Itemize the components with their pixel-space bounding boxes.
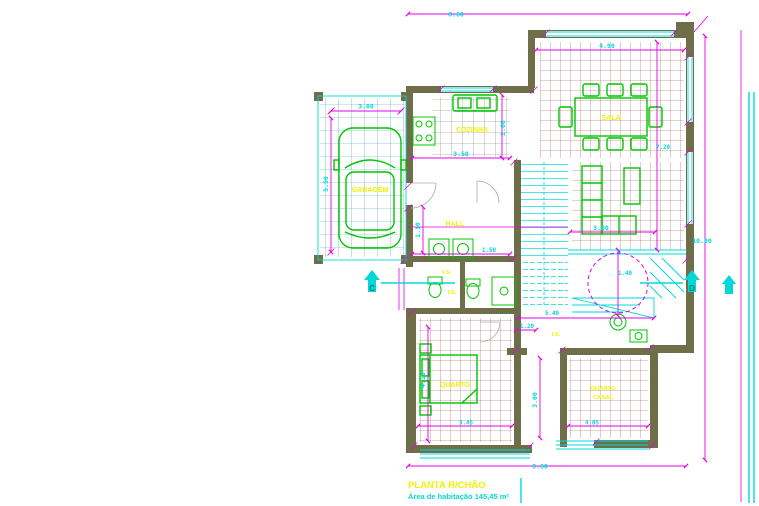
dim-text: 10.00 — [692, 237, 712, 245]
dim-text: 1.50 — [482, 248, 496, 254]
dining-label: SALA — [601, 115, 620, 122]
window-kitchen-top — [441, 87, 493, 92]
drawing-subtitle: Área de habitação 145,45 m² — [408, 492, 509, 501]
door-swing — [411, 183, 436, 208]
bath-label: I.S. — [552, 332, 561, 338]
toilet — [466, 279, 480, 299]
floor-plan-canvas: GARAGEM COZINHA SALA — [0, 0, 759, 506]
garage-post — [314, 255, 323, 264]
dim-text: 5.40 — [545, 311, 559, 317]
dim-text: 3.00 — [531, 392, 539, 408]
title-block: PLANTA R/CHÃO Área de habitação 145,45 m… — [408, 480, 509, 501]
ramp — [572, 298, 654, 318]
bedroom-label: QUARTO — [440, 382, 471, 389]
dim-leader — [694, 16, 708, 32]
dim-text: 1.40 — [618, 271, 632, 277]
section-arrow-icon — [722, 275, 736, 294]
shower — [492, 277, 516, 305]
garage-post — [401, 92, 410, 101]
step-edge — [568, 250, 686, 254]
bedroom2-label: CASAL — [593, 395, 613, 401]
dim-text: 4.05 — [585, 421, 599, 427]
dim-text: 1.10 — [414, 222, 422, 238]
section-letter: C — [369, 284, 375, 293]
window-right-lower — [687, 152, 693, 224]
dim-text: 5.50 — [322, 176, 330, 192]
garage-label: GARAGEM — [352, 187, 389, 194]
dim-text: 1.20 — [520, 324, 534, 330]
cad-sheet: GARAGEM COZINHA SALA — [0, 0, 759, 506]
dim-text: 8.60 — [448, 11, 464, 19]
diagonal-hatch — [650, 258, 684, 298]
dim-text: 2.60 — [499, 120, 507, 136]
door-swing — [477, 181, 499, 203]
toilet — [428, 277, 442, 298]
dim-text: 3.00 — [358, 103, 374, 111]
dim-text: 8.60 — [532, 463, 548, 471]
dining-floor-hatch — [540, 42, 684, 158]
bedroom2-label: QUARTO — [590, 386, 616, 392]
kitchen-label: COZINHA — [456, 127, 488, 134]
wc-label: I.S. — [443, 270, 452, 276]
garage-post — [401, 255, 410, 264]
entry-path-lines — [399, 268, 404, 310]
stair-treads-hidden — [521, 260, 568, 306]
dim-text: 4.90 — [599, 42, 615, 50]
dim-text: 4.10 — [419, 372, 427, 388]
stairs — [521, 162, 568, 306]
adjacent-sheet-edge — [749, 92, 754, 503]
drawing-title: PLANTA R/CHÃO — [408, 480, 486, 491]
window-right-upper — [687, 57, 693, 122]
living-floor-hatch — [572, 162, 684, 250]
dim-text: 3.50 — [453, 150, 469, 158]
stair-treads — [521, 162, 568, 257]
washbasins — [429, 239, 473, 258]
section-letter: D — [689, 284, 695, 293]
wc-label: I.S. — [448, 290, 457, 296]
kitchen-stove — [413, 117, 435, 145]
garage-post — [314, 92, 323, 101]
window-dining-top — [546, 31, 674, 37]
dim-text: 7.20 — [656, 145, 670, 151]
dim-text: 3.00 — [593, 224, 609, 232]
dim-text: 3.45 — [459, 421, 473, 427]
